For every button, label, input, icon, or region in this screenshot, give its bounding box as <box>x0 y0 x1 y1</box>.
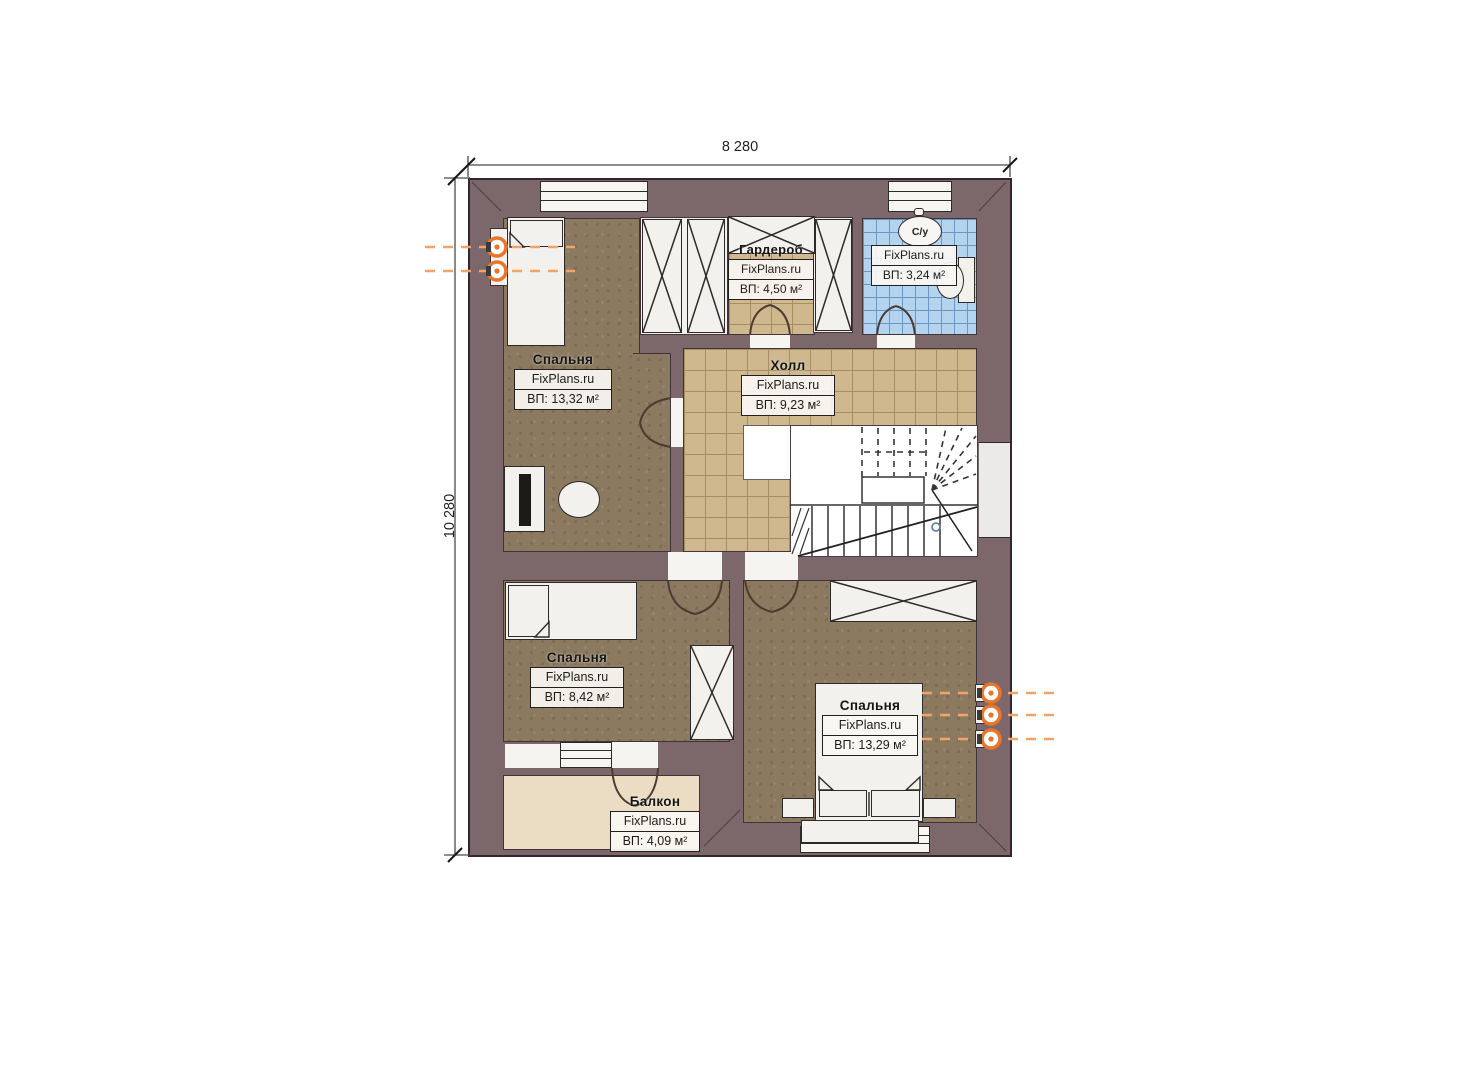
mattress-right-icon <box>871 790 920 817</box>
room-name: Холл <box>770 358 805 373</box>
nightstand-right-icon <box>923 798 956 818</box>
room-area: ВП: 9,23 м² <box>742 395 834 415</box>
window-right-stairs <box>979 442 1010 538</box>
brand-watermark: FixPlans.ru <box>611 812 699 831</box>
wardrobe-icon-bedroom-2 <box>690 645 734 740</box>
room-label-hall: Холл FixPlans.ru ВП: 9,23 м² <box>726 358 850 416</box>
room-label-bedroom-2: Спальня FixPlans.ru ВП: 8,42 м² <box>515 650 639 708</box>
dimension-height-label: 10 280 <box>442 476 458 556</box>
room-area: ВП: 13,29 м² <box>823 735 917 755</box>
window-sill-balcony <box>505 744 560 768</box>
brand-watermark: FixPlans.ru <box>515 370 611 389</box>
brand-watermark: FixPlans.ru <box>872 246 956 265</box>
bench-icon <box>801 820 919 843</box>
door-gap-bedroom-3 <box>745 552 798 580</box>
room-label-bathroom: FixPlans.ru ВП: 3,24 м² <box>872 245 956 286</box>
door-gap-bathroom <box>877 335 915 348</box>
radiator-niche-2 <box>975 706 989 724</box>
room-label-wardrobe: Гардероб FixPlans.ru ВП: 4,50 м² <box>709 242 833 300</box>
monitor-icon <box>519 474 531 526</box>
room-label-bedroom-1: Спальня FixPlans.ru ВП: 13,32 м² <box>501 352 625 410</box>
brand-watermark: FixPlans.ru <box>531 668 623 687</box>
window-balcony <box>560 742 612 768</box>
door-gap-wardrobe <box>750 335 790 348</box>
tap-icon <box>914 208 924 216</box>
sink-icon: С/у <box>898 216 942 247</box>
wardrobe-icon-bedroom-3 <box>830 580 977 622</box>
dimension-width-label: 8 280 <box>700 139 780 155</box>
bedroom-1-floor-ext <box>633 353 671 552</box>
brand-watermark: FixPlans.ru <box>742 376 834 395</box>
room-name: Балкон <box>630 794 681 809</box>
floor-plan-canvas: 8 280 10 280 <box>0 0 1473 1080</box>
door-gap-bedroom-2 <box>668 552 722 580</box>
door-gap-balcony <box>612 742 658 768</box>
room-name: Гардероб <box>739 242 803 257</box>
room-area: ВП: 4,09 м² <box>611 831 699 851</box>
room-name: Спальня <box>840 698 900 713</box>
room-area: ВП: 4,50 м² <box>729 279 813 299</box>
pillow-icon-bedroom-1 <box>510 220 563 247</box>
bathroom-name-on-sink: С/у <box>912 226 928 238</box>
radiator-niche-1 <box>975 684 989 702</box>
room-name: Спальня <box>547 650 607 665</box>
nightstand-left-icon <box>782 798 814 818</box>
brand-watermark: FixPlans.ru <box>729 260 813 279</box>
brand-watermark: FixPlans.ru <box>823 716 917 735</box>
radiator-niche-3 <box>975 730 989 748</box>
room-area: ВП: 3,24 м² <box>872 265 956 285</box>
room-name: Спальня <box>533 352 593 367</box>
chair-icon <box>558 481 600 518</box>
room-label-bedroom-3: Спальня FixPlans.ru ВП: 13,29 м² <box>808 698 932 756</box>
door-gap-bedroom-1 <box>671 398 683 447</box>
room-area: ВП: 8,42 м² <box>531 687 623 707</box>
room-area: ВП: 13,32 м² <box>515 389 611 409</box>
pillow-icon-bedroom-2 <box>508 585 549 637</box>
mattress-left-icon <box>819 790 867 817</box>
window-top-bedroom-1 <box>540 181 648 212</box>
staircase-area <box>790 425 978 557</box>
room-label-balcony: Балкон FixPlans.ru ВП: 4,09 м² <box>593 794 717 852</box>
closet-icon-1 <box>642 219 682 333</box>
